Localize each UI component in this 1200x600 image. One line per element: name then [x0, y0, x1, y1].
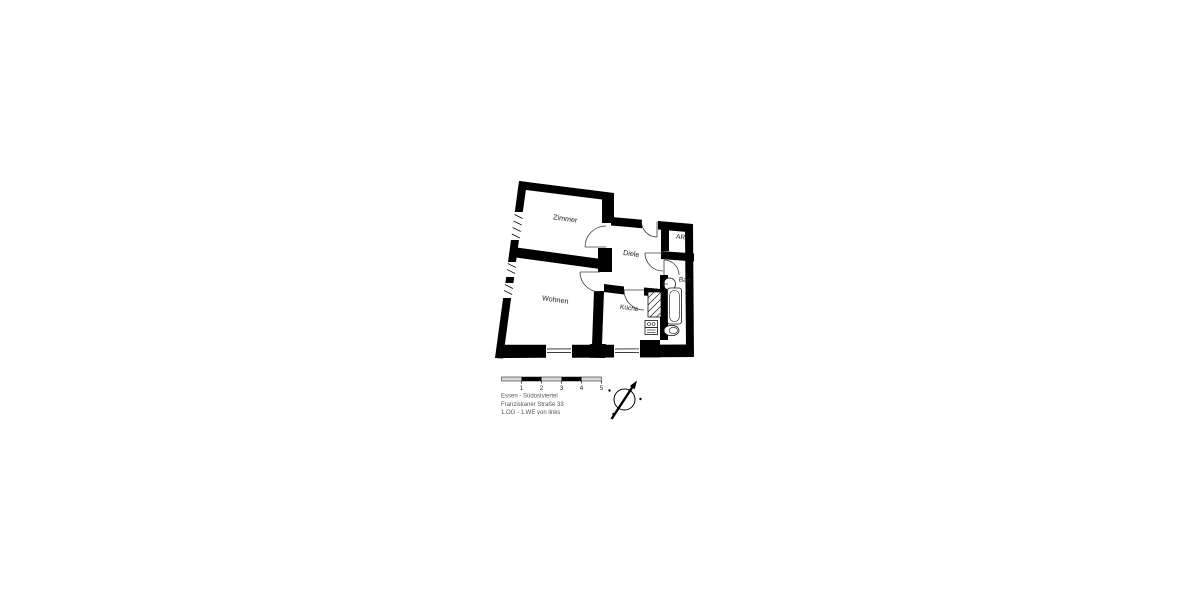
scale-label-2: 2 — [540, 385, 544, 392]
door-bad — [664, 260, 679, 275]
address-line-2: Franziskaner Straße 33 — [501, 402, 564, 408]
kitchen-sink-unit — [645, 321, 658, 335]
window-bottom-wohnen — [547, 349, 571, 353]
room-label-wohnen: Wohnen — [542, 293, 570, 306]
window-mullion — [505, 277, 514, 283]
pier-kueche-bad — [640, 340, 660, 357]
wall-right — [685, 224, 694, 357]
address-line-1: Essen - Südostviertel — [501, 394, 558, 400]
door-wohnen — [580, 272, 600, 292]
room-label-zimmer: Zimmer — [553, 212, 579, 224]
north-arrow-dot-west — [608, 389, 610, 391]
room-label-ar: AR — [676, 234, 686, 242]
room-label-bad: Bad — [678, 276, 691, 284]
scale-bar: 1 2 3 4 5 — [502, 377, 604, 392]
north-arrow-dot-east — [639, 398, 641, 400]
wall-wohnen-kueche — [592, 291, 604, 345]
scale-bar-segment-1-2 — [522, 377, 542, 381]
kitchen-stove — [648, 292, 661, 317]
address-block: Essen - Südostviertel Franziskaner Straß… — [501, 394, 564, 417]
wall-diele-junction — [598, 248, 612, 272]
wall-top-entry-left — [611, 217, 642, 228]
wall-kueche-stub-left — [604, 284, 624, 295]
north-arrow-dot-south — [612, 413, 614, 415]
pier-wohnen-kueche — [589, 344, 606, 358]
wall-top-zimmer — [519, 181, 614, 201]
room-label-kueche: Küche — [619, 304, 639, 314]
room-label-diele: Diele — [623, 248, 640, 259]
door-entrance — [642, 222, 658, 238]
scale-label-5: 5 — [600, 385, 604, 392]
windows — [504, 215, 639, 353]
scale-label-4: 4 — [580, 385, 584, 392]
window-bottom-kueche — [615, 349, 639, 353]
scale-bar-segment-3-4 — [562, 377, 582, 381]
scale-bar-ticks — [522, 381, 602, 384]
wall-zimmer-wohnen — [512, 247, 601, 269]
window-wohnen-double — [504, 264, 516, 295]
wall-left-upper — [515, 181, 527, 212]
scale-label-1: 1 — [520, 385, 524, 392]
scale-label-3: 3 — [560, 385, 564, 392]
door-zimmer — [585, 226, 606, 247]
scale-bar-track — [502, 377, 602, 381]
wall-ar-left — [661, 226, 669, 251]
floorplan-canvas: Zimmer Wohnen Diele Küche Bad AR 1 2 3 4… — [0, 0, 1200, 600]
north-arrow — [608, 381, 641, 420]
floorplan-page: Zimmer Wohnen Diele Küche Bad AR 1 2 3 4… — [0, 0, 1200, 600]
interior-walls — [512, 226, 694, 358]
toilet — [664, 325, 679, 335]
bathtub — [668, 288, 682, 324]
window-zimmer — [512, 215, 523, 239]
address-line-3: 1.OG - 1.WE von links — [501, 410, 560, 416]
door-ar — [645, 253, 663, 271]
